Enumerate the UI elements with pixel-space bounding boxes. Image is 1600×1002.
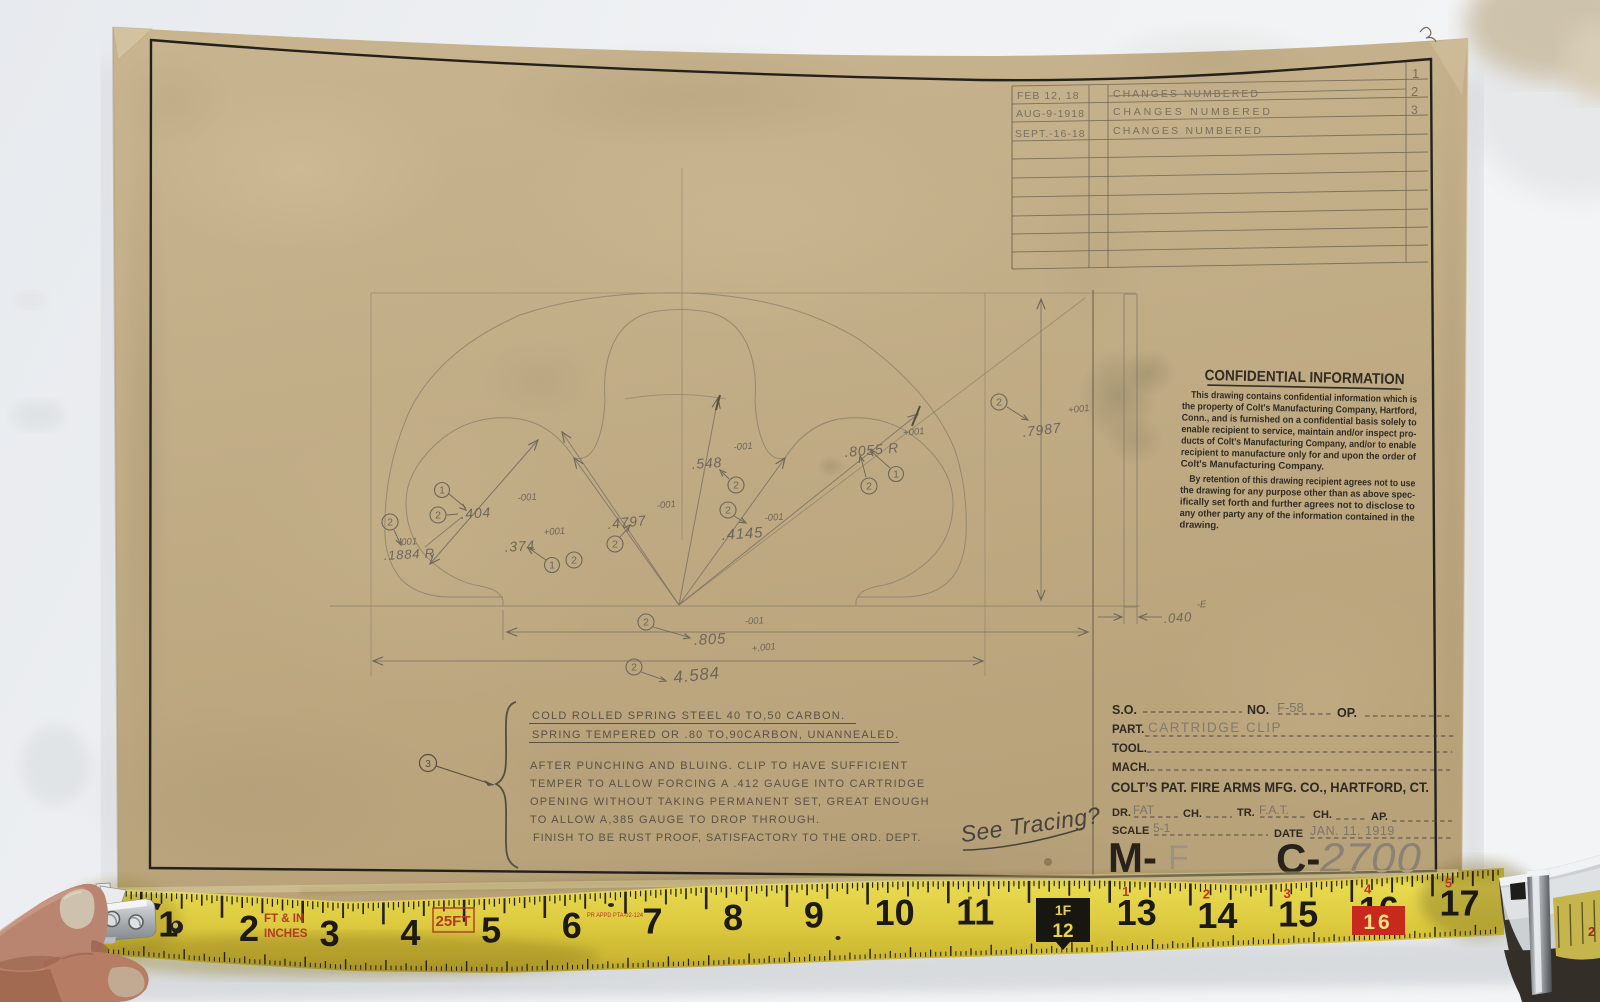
svg-text:OP.: OP. [1337,706,1357,720]
svg-text:COLT’S PAT. FIRE ARMS MFG. CO.: COLT’S PAT. FIRE ARMS MFG. CO., HARTFORD… [1111,780,1429,795]
svg-text:3: 3 [425,759,431,770]
svg-text:.4145: .4145 [721,524,764,544]
svg-text:FAT: FAT [1133,803,1155,817]
svg-text:CHANGES NUMBERED: CHANGES NUMBERED [1113,106,1273,118]
svg-text:FT & IN: FT & IN [264,913,304,925]
svg-text:drawing.: drawing. [1179,519,1219,531]
svg-text:7: 7 [642,901,662,942]
svg-text:1: 1 [1412,66,1420,81]
svg-text:.548: .548 [691,454,722,472]
svg-text:3: 3 [1283,886,1290,901]
svg-text:MACH.: MACH. [1112,762,1150,774]
svg-text:4: 4 [1364,882,1372,897]
svg-text:+001: +001 [543,526,565,538]
svg-text:1F: 1F [1055,902,1072,918]
svg-text:COLD ROLLED SPRING STEEL 40 TO: COLD ROLLED SPRING STEEL 40 TO,50 CARBON… [532,710,845,722]
svg-text:S.O.: S.O. [1112,703,1137,717]
svg-text:SPRING TEMPERED OR .80 TO,90CA: SPRING TEMPERED OR .80 TO,90CARBON, UNAN… [532,729,899,741]
svg-text:2: 2 [866,481,872,493]
svg-text:1: 1 [1122,884,1129,899]
svg-text:+001: +001 [903,426,925,439]
svg-text:2: 2 [612,539,618,551]
svg-text:AP.: AP. [1371,811,1388,823]
svg-text:5: 5 [481,909,501,950]
svg-text:2: 2 [387,517,393,529]
svg-text:PR APPD PTA-02-124: PR APPD PTA-02-124 [587,912,643,919]
svg-text:9: 9 [804,895,824,936]
svg-text:-001: -001 [398,536,418,548]
svg-text:-E: -E [1196,599,1207,611]
svg-text:PART.: PART. [1112,724,1144,736]
svg-text:8: 8 [723,897,743,938]
svg-text:2: 2 [239,908,259,949]
svg-text:3: 3 [1411,103,1419,117]
svg-text:CARTRIDGE CLIP: CARTRIDGE CLIP [1148,720,1282,735]
svg-text:FINISH TO BE RUST PROOF, SATIS: FINISH TO BE RUST PROOF, SATISFACTORY TO… [533,832,921,844]
svg-text:.805: .805 [693,630,726,649]
svg-text:10: 10 [875,892,915,933]
svg-text:2: 2 [571,555,577,567]
svg-text:2: 2 [1411,84,1419,99]
svg-text:2: 2 [1588,924,1595,939]
svg-text:CH.: CH. [1183,808,1202,820]
svg-text:16: 16 [1363,911,1392,934]
svg-text:TEMPER TO ALLOW FORCING A .412: TEMPER TO ALLOW FORCING A .412 GAUGE INT… [530,778,925,790]
svg-text:2: 2 [643,617,649,629]
svg-text:.404: .404 [460,504,491,522]
svg-text:FEB 12, 18: FEB 12, 18 [1017,90,1080,102]
svg-text:2: 2 [435,510,441,522]
svg-text:AUG-9-1918: AUG-9-1918 [1016,108,1085,120]
svg-text:2: 2 [733,480,739,492]
svg-text:-001: -001 [733,441,753,453]
svg-text:TR.: TR. [1237,807,1255,819]
svg-text:CHANGES NUMBERED: CHANGES NUMBERED [1113,125,1263,137]
svg-text:6: 6 [562,905,582,946]
svg-text:.374: .374 [504,537,535,555]
svg-text:2: 2 [996,397,1002,409]
svg-text:3: 3 [320,913,340,954]
svg-text:F-58: F-58 [1277,700,1304,715]
svg-text:F.A.T.: F.A.T. [1259,803,1289,817]
svg-text:25FT: 25FT [435,913,470,930]
svg-text:5: 5 [1445,875,1452,890]
svg-text:NO.: NO. [1247,703,1269,717]
svg-text:INCHES: INCHES [264,928,308,940]
svg-text:2: 2 [631,662,637,674]
svg-text:DR.: DR. [1112,807,1131,819]
svg-text:5-1: 5-1 [1153,821,1171,835]
svg-text:.040: .040 [1163,609,1192,626]
svg-text:OPENING WITHOUT TAKING PERMA: OPENING WITHOUT TAKING PERMANENT SET, GR… [530,796,930,808]
svg-text:CHANGES NUMBERED: CHANGES NUMBERED [1113,88,1260,100]
svg-text:TOOL.: TOOL. [1112,743,1147,755]
svg-text:-001: -001 [517,492,537,504]
svg-text:2: 2 [725,505,731,517]
svg-text:1: 1 [549,560,555,572]
svg-text:-001: -001 [656,499,676,512]
svg-text:TO ALLOW A,385 GAUGE TO DROP T: TO ALLOW A,385 GAUGE TO DROP THROUGH. [530,814,820,826]
svg-text:11: 11 [956,892,994,933]
svg-text:12: 12 [1052,921,1073,942]
svg-text:AFTER PUNCHING AND BLUING. CLI: AFTER PUNCHING AND BLUING. CLIP TO HAVE … [530,760,908,772]
svg-text:-001: -001 [745,615,765,627]
svg-text:4: 4 [400,912,420,953]
svg-text:-001: -001 [764,512,784,524]
svg-text:.1884 R: .1884 R [383,545,435,563]
svg-text:1: 1 [893,469,899,481]
svg-text:2: 2 [1203,887,1210,902]
svg-text:F: F [1168,839,1189,877]
svg-text:SEPT.-16-18: SEPT.-16-18 [1015,128,1086,140]
svg-text:CH.: CH. [1313,809,1332,821]
svg-text:1: 1 [439,485,445,497]
